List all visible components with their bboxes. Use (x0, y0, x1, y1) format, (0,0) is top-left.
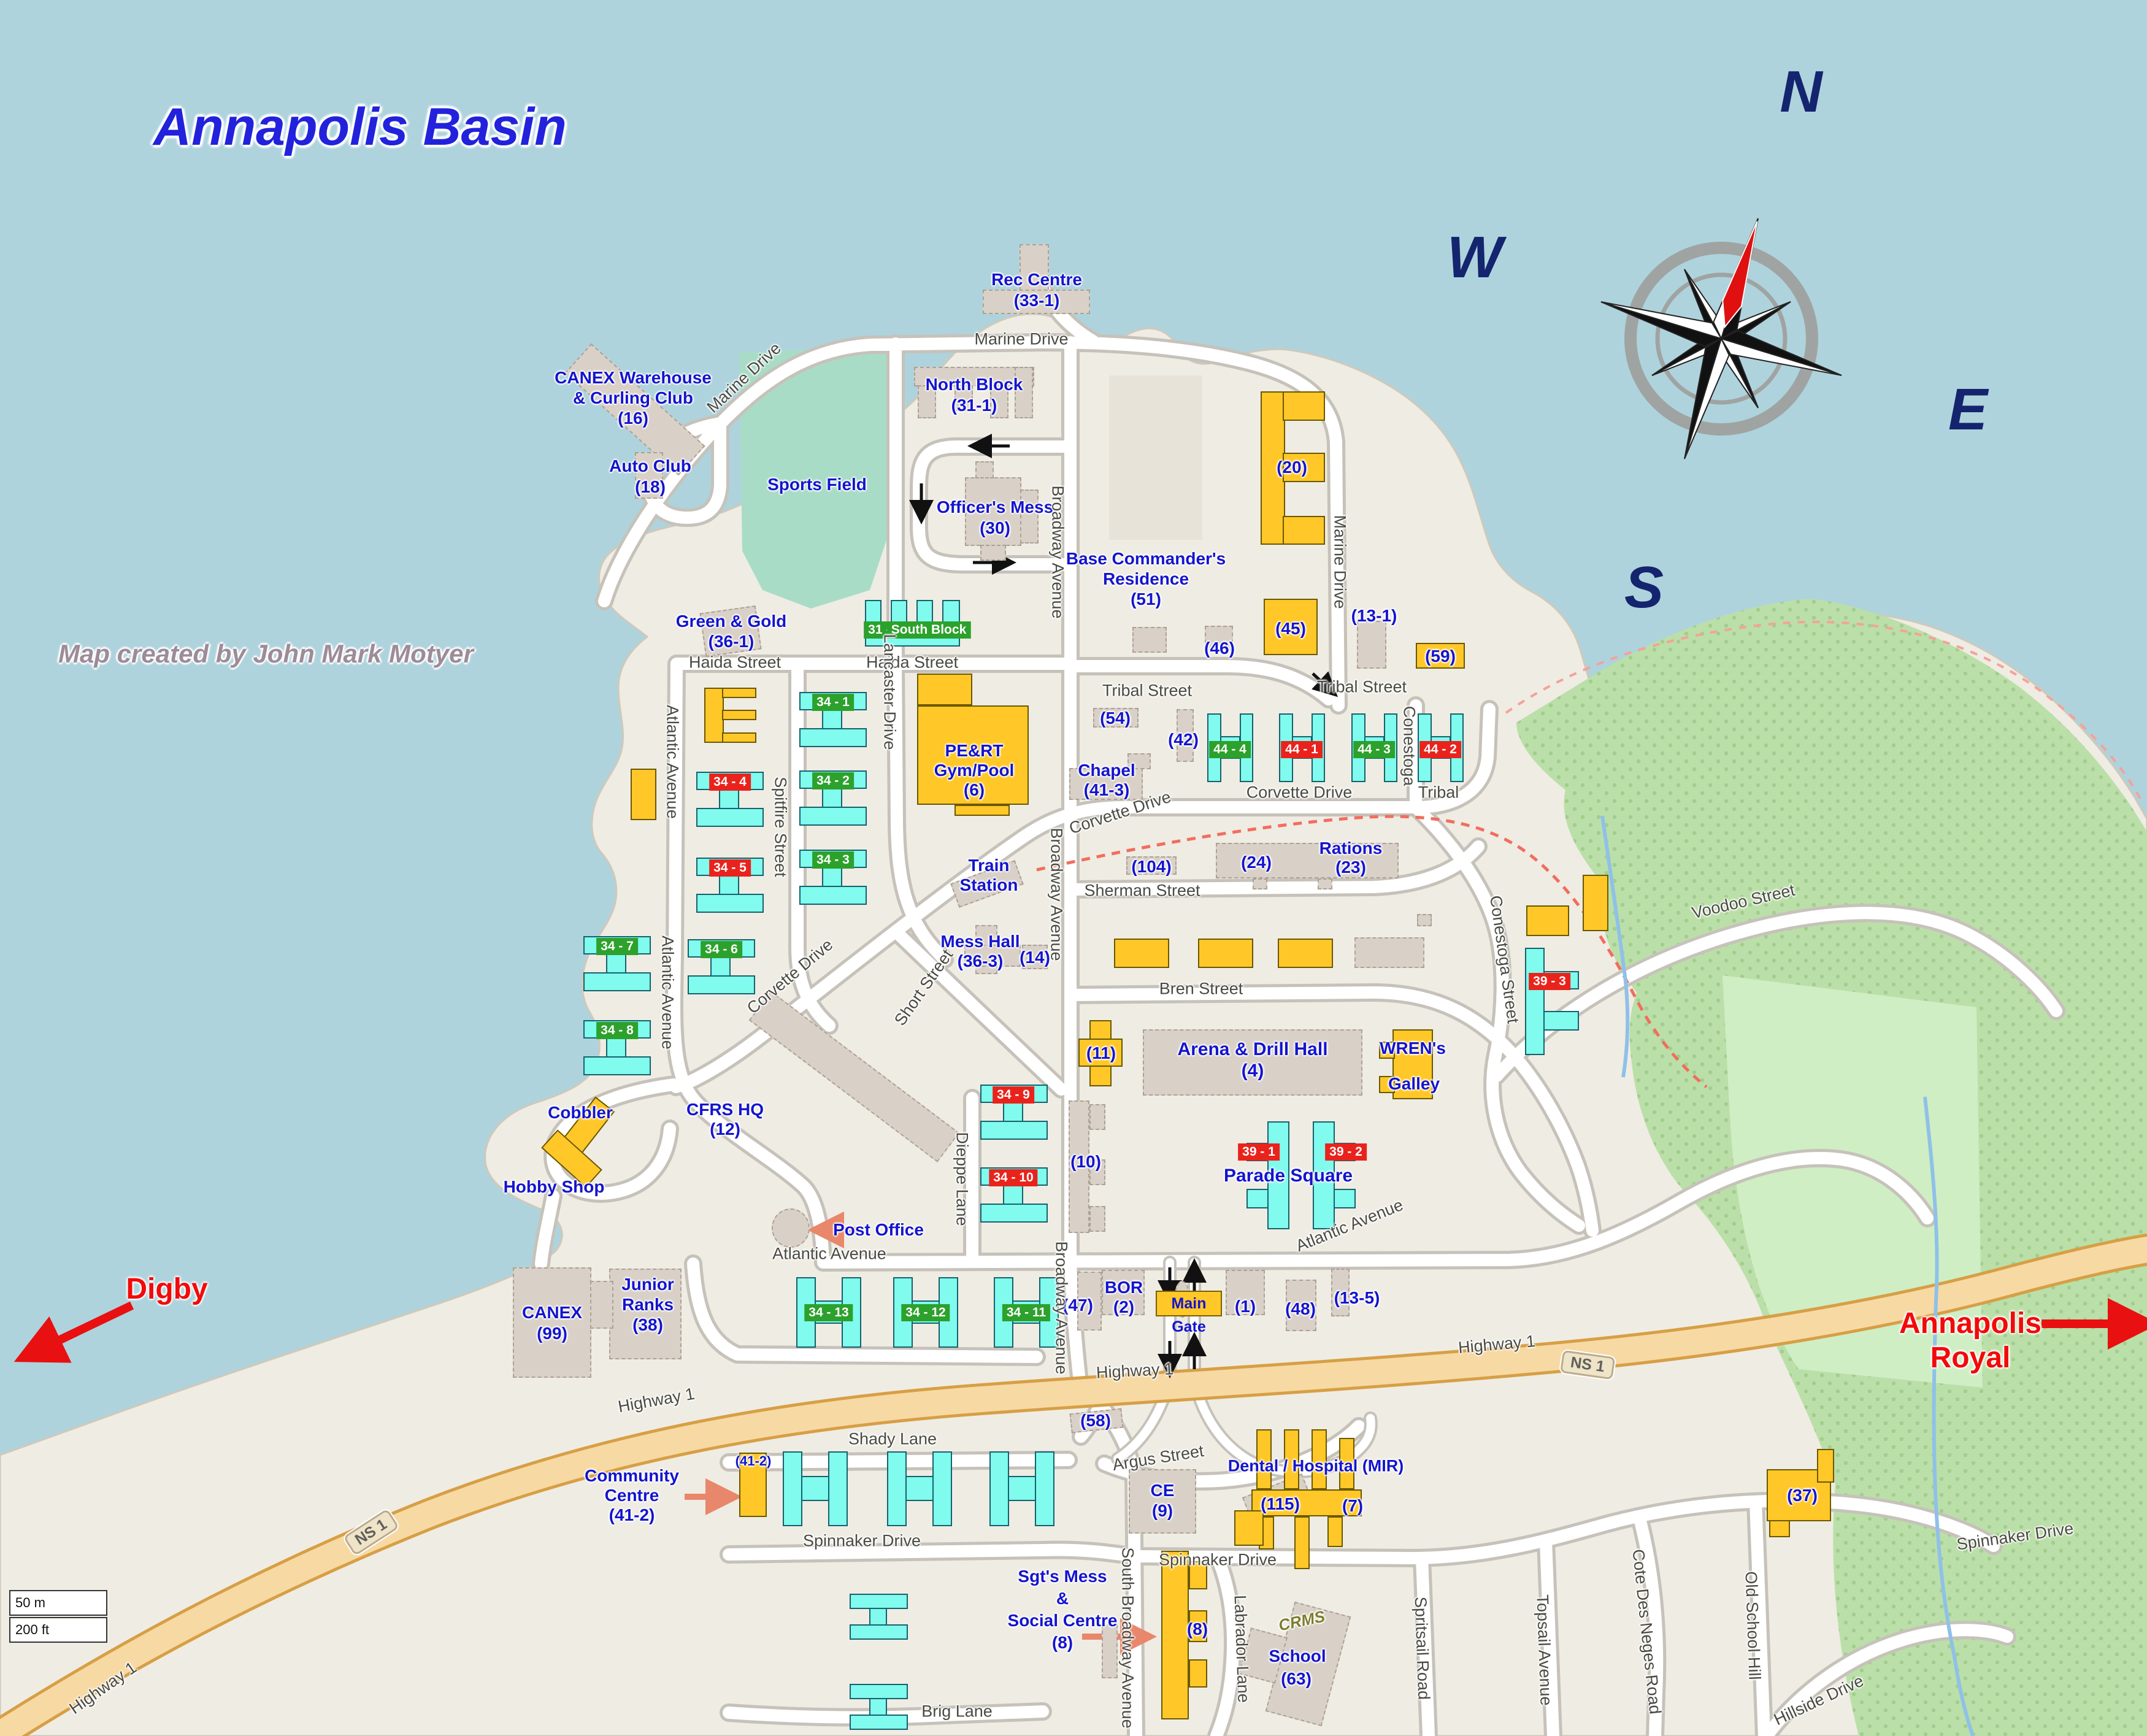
community-h3-part (1035, 1451, 1054, 1526)
label-conestoga: Conestoga (1401, 706, 1418, 786)
bldg-34-2-part (799, 807, 867, 826)
label-lancaster-drive: Lancaster Drive (881, 634, 898, 750)
label-rec-centre: Rec Centre (991, 271, 1082, 288)
label--7-: (7) (1342, 1497, 1363, 1515)
label-sherman-street: Sherman Street (1084, 883, 1200, 899)
label-mess-hall: Mess Hall (940, 933, 1020, 950)
label--59-: (59) (1425, 648, 1456, 665)
bldg-13-1 (1357, 621, 1386, 669)
bldg-8-spine-part (1161, 1551, 1189, 1719)
label--30-: (30) (980, 520, 1010, 537)
bldg-20-part (1283, 516, 1325, 545)
label-gym-pool: Gym/Pool (934, 762, 1015, 779)
bldg-39-3-a2-part (1543, 1011, 1579, 1031)
community-h2-part (887, 1451, 907, 1526)
bldg-34-3-part (799, 886, 867, 905)
gym-a (917, 674, 972, 705)
scale-bar: 50 m 200 ft (9, 1590, 107, 1644)
badge-34-10: 34 - 10 (989, 1169, 1037, 1186)
bren-tan (1354, 937, 1424, 968)
bldg-34-10-part (980, 1204, 1048, 1223)
label--31-1-: (31-1) (951, 397, 997, 414)
community-h3-part (1008, 1476, 1037, 1500)
label--63-: (63) (1281, 1670, 1312, 1688)
canex-99-main-part (513, 1267, 591, 1378)
label-spinnaker-drive: Spinnaker Drive (1159, 1552, 1277, 1569)
base-commander-house (1132, 627, 1167, 653)
label-bren-street: Bren Street (1159, 981, 1243, 997)
label--18-: (18) (635, 478, 666, 496)
label-post-office: Post Office (833, 1221, 924, 1239)
bldg-24-stem2-part (1318, 878, 1332, 889)
label--6-: (6) (964, 782, 985, 799)
community-h2-part (932, 1451, 952, 1526)
label--9-: (9) (1152, 1502, 1173, 1519)
atlantic-e-bldg (704, 688, 756, 743)
officers-mess-stem (980, 545, 1006, 561)
label-spinnaker-drive: Spinnaker Drive (803, 1533, 921, 1550)
bldg-37-foot (1769, 1520, 1790, 1537)
badge-44-1: 44 - 1 (1281, 741, 1323, 758)
label--2-: (2) (1113, 1299, 1134, 1316)
community-h2-part (905, 1476, 934, 1500)
south-block-t2-part (891, 600, 907, 623)
community-h3-part (989, 1451, 1009, 1526)
label-wren-s: WREN's (1380, 1040, 1446, 1057)
label--51-: (51) (1131, 591, 1161, 608)
label--104-: (104) (1131, 858, 1171, 875)
dental-d2 (1294, 1516, 1310, 1569)
label-labrador-lane: Labrador Lane (1231, 1595, 1251, 1703)
map-title: Annapolis Basin (153, 97, 567, 158)
bldg-39-1-a2-part (1246, 1189, 1269, 1208)
sgt-cyan-1-part (850, 1624, 908, 1640)
sgt-cyan-1-part (850, 1594, 908, 1609)
bldg-24-stem2 (1318, 878, 1332, 889)
badge-34-8: 34 - 8 (596, 1022, 638, 1039)
south-block-t3-part (916, 600, 933, 623)
compass-label-north: N (1780, 58, 1822, 126)
bren-orange-1-part (1114, 939, 1169, 968)
label-broadway-avenue: Broadway Avenue (1053, 1241, 1070, 1374)
bldg-24-stem1 (1253, 878, 1267, 889)
bldg-8-t3 (1189, 1659, 1207, 1688)
bldg-39-2-a2 (1334, 1189, 1356, 1208)
atlantic-e-bldg-part (722, 732, 756, 743)
label-rations: Rations (1319, 840, 1383, 857)
orange-39b (1583, 875, 1608, 931)
label-hobby-shop: Hobby Shop (504, 1178, 605, 1196)
badge-34-5: 34 - 5 (709, 859, 751, 877)
label-tribal-street: Tribal Street (1317, 679, 1407, 696)
label-cfrs-hq: CFRS HQ (686, 1101, 764, 1118)
bldg-37-stem-part (1817, 1449, 1834, 1483)
label-corvette-drive: Corvette Drive (1246, 785, 1353, 801)
label-ce: CE (1151, 1482, 1175, 1499)
canex-99-main (513, 1267, 591, 1378)
label-haida-street: Haida Street (866, 655, 958, 671)
label-arena-drill-hall: Arena & Drill Hall (1177, 1040, 1327, 1059)
label-marine-drive: Marine Drive (974, 331, 1068, 348)
bldg-34-10-part (1003, 1184, 1023, 1206)
sgt-cyan-2-part (869, 1698, 887, 1716)
badge-44-2: 44 - 2 (1419, 741, 1461, 758)
bldg-34-2-part (822, 787, 842, 809)
bren-orange-2 (1198, 939, 1253, 968)
label-base-commander-s: Base Commander's (1066, 550, 1226, 567)
scale-metric: 50 m (9, 1590, 107, 1616)
orange-39b-part (1583, 875, 1608, 931)
bren-orange-2-part (1198, 939, 1253, 968)
community-h1 (783, 1451, 848, 1526)
main-gate-badge: Main Gate (1156, 1291, 1222, 1316)
bldg-34-9-part (1003, 1101, 1023, 1123)
digby-label: Digby (126, 1275, 207, 1304)
label-pe-rt: PE&RT (945, 742, 1004, 759)
post-office-part (772, 1208, 810, 1248)
bren-orange-3-part (1278, 939, 1333, 968)
label--curling-club: & Curling Club (573, 390, 693, 407)
community-h2 (887, 1451, 952, 1526)
compass-label-east: E (1948, 376, 1988, 444)
bldg-34-6-part (710, 956, 731, 978)
small-orange (631, 769, 656, 820)
south-block-t3 (916, 600, 933, 623)
bldg-10-arm1-part (1089, 1104, 1105, 1130)
label-broadway-avenue: Broadway Avenue (1050, 485, 1066, 618)
label-cobbler: Cobbler (548, 1104, 613, 1121)
base-map: Annapolis Basin Map created by John Mark… (0, 0, 2147, 1736)
label--41-2-: (41-2) (736, 1454, 772, 1468)
label-centre: Centre (605, 1487, 659, 1504)
label-brig-lane: Brig Lane (921, 1703, 993, 1720)
atlantic-e-bldg-part (722, 688, 756, 698)
label-parade-square: Parade Square (1224, 1167, 1353, 1185)
south-block-t2 (891, 600, 907, 623)
dental-d2-part (1294, 1516, 1310, 1569)
bldg-34-7-part (583, 972, 651, 991)
label--33-1-: (33-1) (1014, 292, 1060, 309)
label-auto-club: Auto Club (609, 458, 691, 475)
base-commander-plaza-part (1109, 375, 1202, 540)
sgt-cyan-2 (850, 1684, 908, 1730)
label-spitfire-street: Spitfire Street (772, 777, 789, 877)
label--45-: (45) (1275, 620, 1306, 637)
small-square-part (1417, 914, 1432, 926)
bldg-34-8-part (583, 1056, 651, 1075)
label-galley: Galley (1388, 1075, 1440, 1093)
bldg-37-foot-part (1769, 1520, 1790, 1537)
bldg-10-arm1 (1089, 1104, 1105, 1130)
dental-d3 (1327, 1516, 1343, 1547)
label-canex: CANEX (522, 1304, 582, 1321)
label-haida-street: Haida Street (689, 655, 781, 671)
label-old-school-hill: Old School Hill (1742, 1571, 1762, 1680)
orange-39a (1526, 905, 1569, 936)
label--8-: (8) (1052, 1634, 1073, 1651)
bldg-39-1-a2 (1246, 1189, 1269, 1208)
badge-34-9: 34 - 9 (993, 1086, 1034, 1104)
bldg-34-1-part (822, 709, 842, 731)
bldg-34-4-part (696, 808, 764, 827)
label-officer-s-mess: Officer's Mess (937, 499, 1053, 516)
label--41-2-: (41-2) (609, 1507, 655, 1524)
canex-99-wing-part (590, 1281, 613, 1329)
dental-left-part (1234, 1510, 1264, 1546)
badge-34-7: 34 - 7 (596, 938, 638, 955)
annapolis-royal-label-1: Annapolis (1899, 1309, 2041, 1338)
sgt-tan-part (1102, 1624, 1118, 1678)
sgt-cyan-2-part (850, 1684, 908, 1699)
label-shady-lane: Shady Lane (848, 1431, 937, 1448)
sgt-cyan-2-part (850, 1715, 908, 1730)
label-south-broadway-avenue: South Broadway Avenue (1120, 1547, 1136, 1728)
label-bor: BOR (1105, 1279, 1143, 1296)
label-broadway-avenue: Broadway Avenue (1048, 828, 1065, 961)
label--14-: (14) (1020, 949, 1050, 966)
badge-34-12: 34 - 12 (901, 1304, 950, 1321)
annapolis-royal-label-2: Royal (1930, 1343, 2011, 1373)
canex-99-wing (590, 1281, 613, 1329)
label-canex-warehouse: CANEX Warehouse (555, 369, 712, 386)
community-h1-part (828, 1451, 848, 1526)
label--36-1-: (36-1) (709, 633, 755, 650)
label-spritsail-road: Spritsail Road (1412, 1597, 1432, 1700)
community-h1-part (801, 1476, 830, 1500)
label--58-: (58) (1080, 1412, 1111, 1429)
officers-mess-top-part (975, 461, 994, 478)
label-sports-field: Sports Field (767, 476, 867, 493)
officers-mess-top (975, 461, 994, 478)
bldg-34-6-part (688, 975, 755, 994)
bren-tan-part (1354, 937, 1424, 968)
badge-34-4: 34 - 4 (709, 774, 751, 791)
label--37-: (37) (1787, 1487, 1818, 1504)
label-school: School (1269, 1648, 1326, 1665)
label-community: Community (585, 1467, 679, 1484)
bldg-34-7-part (606, 953, 626, 975)
bldg-37-stem (1817, 1449, 1834, 1483)
bldg-10-arm3-part (1089, 1206, 1105, 1232)
sgt-cyan-1-part (869, 1608, 887, 1626)
bldg-24-stem1-part (1253, 878, 1267, 889)
bldg-39-2-a2-part (1334, 1189, 1356, 1208)
label-social-centre: Social Centre (1008, 1612, 1118, 1629)
label-north-block: North Block (926, 376, 1023, 393)
label--16-: (16) (618, 410, 648, 427)
community-h1-part (783, 1451, 802, 1526)
south-block-t4-part (942, 600, 960, 623)
badge-39-1: 39 - 1 (1238, 1143, 1280, 1161)
gym-a-part (917, 674, 972, 705)
label--46-: (46) (1204, 640, 1235, 657)
label-highway-1: Highway 1 (1096, 1361, 1173, 1381)
bldg-34-9-part (980, 1121, 1048, 1140)
south-block-t1-part (865, 600, 881, 623)
bldg-34-5-part (696, 894, 764, 913)
label-junior: Junior (621, 1276, 674, 1293)
label-atlantic-avenue: Atlantic Avenue (664, 705, 681, 819)
scale-imperial: 200 ft (9, 1617, 107, 1643)
bldg-34-1-part (799, 728, 867, 747)
badge-SouthBlock: South Block (887, 621, 971, 639)
dental-left (1234, 1510, 1264, 1546)
bldg-20-part (1283, 391, 1325, 421)
label--20-: (20) (1277, 459, 1307, 476)
label-dieppe-lane: Dieppe Lane (954, 1132, 970, 1226)
badge-44-3: 44 - 3 (1353, 741, 1395, 758)
atlantic-e-bldg-part (704, 688, 724, 743)
small-square (1417, 914, 1432, 926)
label--115-: (115) (1261, 1496, 1300, 1513)
label--54-: (54) (1100, 710, 1131, 727)
label--42-: (42) (1168, 731, 1199, 748)
south-block-t1 (865, 600, 881, 623)
label--48-: (48) (1285, 1300, 1316, 1318)
sgt-cyan-1 (850, 1594, 908, 1640)
bldg-39-3-spine-part (1525, 948, 1545, 1055)
label-atlantic-avenue: Atlantic Avenue (772, 1246, 886, 1262)
label--11-: (11) (1086, 1045, 1116, 1062)
label--8-: (8) (1187, 1621, 1208, 1638)
base-commander-plaza (1109, 375, 1202, 540)
officers-mess-stem-part (980, 545, 1006, 561)
label--99-: (99) (537, 1325, 567, 1342)
label--10-: (10) (1070, 1153, 1101, 1170)
gym-c-part (954, 805, 1010, 816)
label-ranks: Ranks (622, 1296, 674, 1313)
label--12-: (12) (710, 1121, 740, 1138)
bldg-10-arm3 (1089, 1206, 1105, 1232)
badge-39-2: 39 - 2 (1325, 1143, 1367, 1161)
post-office (772, 1208, 810, 1248)
sgt-tan (1102, 1624, 1118, 1678)
bldg-34-3-part (822, 866, 842, 888)
bldg-8-t3-part (1189, 1659, 1207, 1688)
label-dental-hospital-mir-: Dental / Hospital (MIR) (1228, 1458, 1404, 1475)
label-tribal-street: Tribal Street (1102, 683, 1192, 699)
compass-label-south: S (1624, 554, 1664, 621)
label-marine-drive: Marine Drive (1332, 515, 1348, 609)
community-h3 (989, 1451, 1054, 1526)
base-commander-house-part (1132, 627, 1167, 653)
bldg-39-3-a2 (1543, 1011, 1579, 1031)
bren-orange-3 (1278, 939, 1333, 968)
bldg-13-1-part (1357, 621, 1386, 669)
label--36-3-: (36-3) (958, 953, 1004, 970)
atlantic-e-bldg-part (722, 710, 756, 720)
label--41-3-: (41-3) (1084, 782, 1130, 799)
label--23-: (23) (1335, 859, 1366, 876)
label--13-1-: (13-1) (1351, 607, 1397, 624)
orange-39a-part (1526, 905, 1569, 936)
label-atlantic-avenue: Atlantic Avenue (659, 935, 676, 1050)
label-green-gold: Green & Gold (676, 613, 786, 630)
bldg-39-3-spine (1525, 948, 1545, 1055)
badge-34-11: 34 - 11 (1002, 1304, 1050, 1321)
bldg-34-8-part (606, 1037, 626, 1059)
badge-34-2: 34 - 2 (812, 772, 854, 789)
badge-44-4: 44 - 4 (1209, 741, 1251, 758)
badge-34-3: 34 - 3 (812, 851, 854, 869)
label-train: Train (969, 857, 1010, 874)
label--38-: (38) (632, 1316, 663, 1334)
label-topsail-avenue: Topsail Avenue (1534, 1594, 1554, 1706)
label-tribal: Tribal (1418, 785, 1459, 801)
dental-d3-part (1327, 1516, 1343, 1547)
compass-label-west: W (1447, 224, 1503, 291)
south-block-t4 (942, 600, 960, 623)
bren-orange-1 (1114, 939, 1169, 968)
map-credit: Map created by John Mark Motyer (58, 639, 474, 669)
label--24-: (24) (1241, 854, 1272, 871)
bldg-8-spine (1161, 1551, 1189, 1719)
bldg-34-4-part (719, 788, 739, 810)
badge-34-6: 34 - 6 (701, 941, 742, 958)
label-residence: Residence (1103, 570, 1189, 588)
label--: & (1056, 1590, 1069, 1607)
badge-39-3: 39 - 3 (1529, 973, 1570, 990)
label--4-: (4) (1242, 1062, 1264, 1080)
label-station: Station (960, 877, 1018, 894)
label--1-: (1) (1235, 1298, 1256, 1315)
label-sgt-s-mess: Sgt's Mess (1018, 1568, 1107, 1585)
badge-34-1: 34 - 1 (812, 694, 854, 711)
badge-34-13: 34 - 13 (804, 1304, 853, 1321)
label--13-5-: (13-5) (1334, 1289, 1380, 1307)
small-orange-part (631, 769, 656, 820)
bldg-34-5-part (719, 874, 739, 896)
gym-c (954, 805, 1010, 816)
label-chapel: Chapel (1078, 762, 1135, 779)
